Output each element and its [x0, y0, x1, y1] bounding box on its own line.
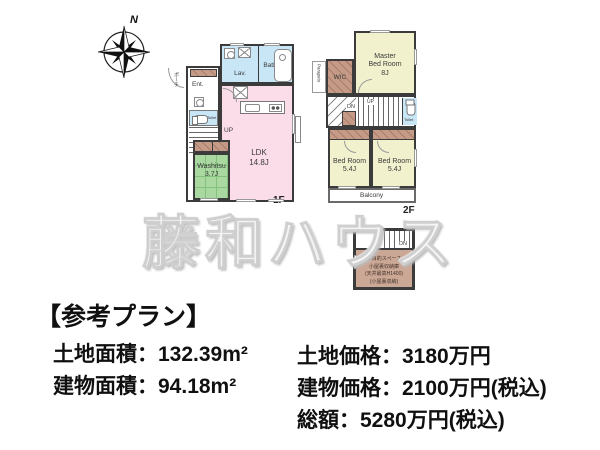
wall-divider: [212, 142, 213, 151]
window-marker: [292, 114, 295, 134]
master-name-2: Bed Room: [368, 61, 401, 68]
bedroom-right-closet: [373, 130, 414, 140]
window-marker: [338, 186, 356, 189]
window-marker: [414, 149, 417, 167]
sink-cabinet-icon: [238, 47, 251, 58]
hall-2f: DN UP Toilet: [326, 95, 416, 128]
stove-icon: [269, 104, 282, 112]
washing-machine-icon: [224, 48, 235, 59]
stairs-up-label-2f: UP: [367, 99, 374, 105]
room-bedroom-right: Bed Room 5.4J: [371, 128, 416, 188]
master-size: 8J: [381, 70, 388, 77]
room-lav-label: Lav.: [224, 70, 256, 78]
master-name-1: Master: [374, 53, 395, 60]
floor1-plan: ポーチ Lav. Bath Ent. Toilet: [186, 44, 296, 202]
compass-north-label: N: [130, 14, 139, 26]
wall-divider: [258, 46, 259, 82]
room-toilet-2f-label: Toilet: [404, 118, 413, 123]
total-price: 総額：5280万円(税込): [297, 404, 505, 434]
bedroom-right-size: 5.4J: [388, 166, 401, 173]
entrance-closet: [190, 69, 217, 77]
room-toilet-2f: Toilet: [402, 98, 417, 125]
land-price: 土地価格：3180万円: [297, 340, 491, 370]
window-marker: [414, 49, 417, 65]
floor-plan-image: N ポーチ Lav. Bath: [0, 0, 600, 450]
hall-closet: [342, 111, 356, 126]
stairs-dn-label-2f: DN: [346, 104, 356, 111]
bathtub-icon: [274, 49, 292, 82]
door-swing-arc: [377, 141, 389, 153]
room-washitsu: Washitsu 3.7J: [193, 153, 230, 200]
room-ldk-label: LDK 14.8J: [239, 148, 279, 167]
room-lav-bath: Lav. Bath: [220, 44, 294, 84]
room-washitsu-label: Washitsu 3.7J: [193, 163, 230, 180]
building-price: 建物価格：2100万円(税込): [297, 372, 547, 402]
bedroom-left-size: 5.4J: [343, 166, 356, 173]
window-marker: [370, 30, 390, 33]
bedroom-left-name: Bed Room: [333, 158, 366, 165]
land-area: 土地面積：132.39m²: [53, 338, 248, 368]
room-ldk: UP LDK 14.8J: [220, 84, 294, 202]
building-area: 建物面積：94.18m²: [53, 370, 236, 400]
room-master-bedroom-label: Master Bed Room 8J: [365, 53, 405, 78]
room-wic-label: WIC: [328, 74, 352, 82]
porch-label: ポーチ: [173, 72, 179, 87]
stairs-2f: [358, 97, 399, 126]
room-wic: WIC: [326, 59, 354, 95]
window-marker: [230, 43, 244, 46]
compass-icon: N: [93, 10, 157, 80]
parapet-label: Parapeto: [316, 64, 321, 82]
stairs-up-label-1f: UP: [224, 127, 233, 135]
washbasin-icon: [194, 97, 204, 107]
room-toilet-1f: Toilet: [189, 110, 218, 126]
toilet-icon: [194, 115, 208, 124]
room-bedroom-right-label: Bed Room 5.4J: [374, 158, 415, 175]
kitchen-sink-icon: [245, 104, 260, 112]
bedroom-left-closet: [330, 130, 369, 140]
door-swing-arc: [358, 79, 372, 93]
room-bedroom-left-label: Bed Room 5.4J: [330, 158, 369, 175]
bay-window: [295, 116, 301, 143]
bedroom-right-name: Bed Room: [378, 158, 411, 165]
room-entrance-label: Ent.: [192, 81, 204, 89]
watermark: 藤和ハウス: [142, 196, 457, 280]
room-ldk-size: 14.8J: [249, 158, 269, 167]
plan-title: 【参考プラン】: [36, 297, 211, 333]
window-marker: [264, 43, 280, 46]
room-toilet-1f-label: Toilet: [207, 116, 216, 121]
door-swing-arc: [344, 141, 356, 153]
kitchen-counter: [240, 101, 285, 114]
parapet-box: Parapeto: [312, 61, 326, 93]
room-washitsu-size: 3.7J: [205, 171, 218, 178]
room-bedroom-left: Bed Room 5.4J: [328, 128, 371, 188]
room-master-bedroom: Master Bed Room 8J: [354, 31, 416, 95]
toilet-icon: [407, 102, 416, 116]
room-ldk-name: LDK: [251, 148, 267, 157]
room-washitsu-name: Washitsu: [197, 163, 226, 170]
washitsu-closet: [193, 140, 230, 153]
window-marker: [382, 186, 400, 189]
floor2-plan: Parapeto WIC Master Bed Room 8J DN UP To…: [312, 31, 418, 203]
